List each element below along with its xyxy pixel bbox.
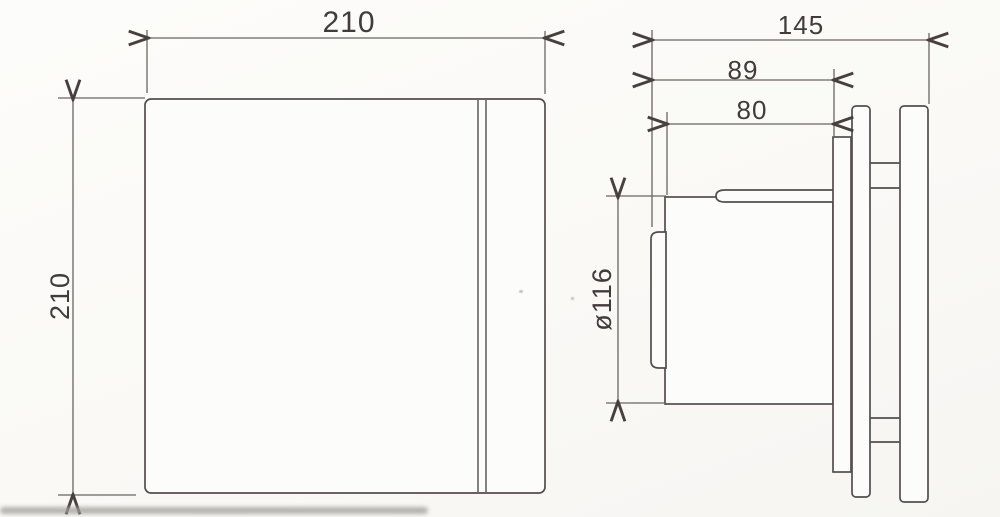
front-view: [145, 99, 545, 493]
dim-label-duct-diameter: ø116: [589, 244, 617, 354]
dim-label-side-body-depth: 89: [703, 57, 783, 83]
side-front-cover-plate: [900, 106, 928, 502]
front-panel-outline: [145, 99, 545, 493]
side-wall-plate: [833, 137, 851, 472]
dim-label-side-duct-depth: 80: [712, 97, 792, 123]
side-mounting-plate: [852, 106, 870, 497]
side-view: [651, 106, 928, 502]
scan-speck: [571, 297, 574, 300]
technical-drawing-canvas: 210 210 145 89 80 ø116: [0, 0, 1000, 517]
side-duct-body-outline: [665, 197, 833, 404]
scan-smudge-bottom: [0, 507, 428, 514]
drawing-linework: [0, 0, 1000, 517]
dim-label-side-total-depth: 145: [741, 12, 861, 38]
side-damper-blade: [716, 190, 834, 202]
dim-label-front-height: 210: [47, 246, 75, 346]
dim-label-front-width: 210: [289, 8, 409, 38]
side-motor-cap-bump: [651, 232, 666, 368]
scan-speck: [519, 290, 523, 293]
side-plate-connectors: [870, 163, 900, 442]
